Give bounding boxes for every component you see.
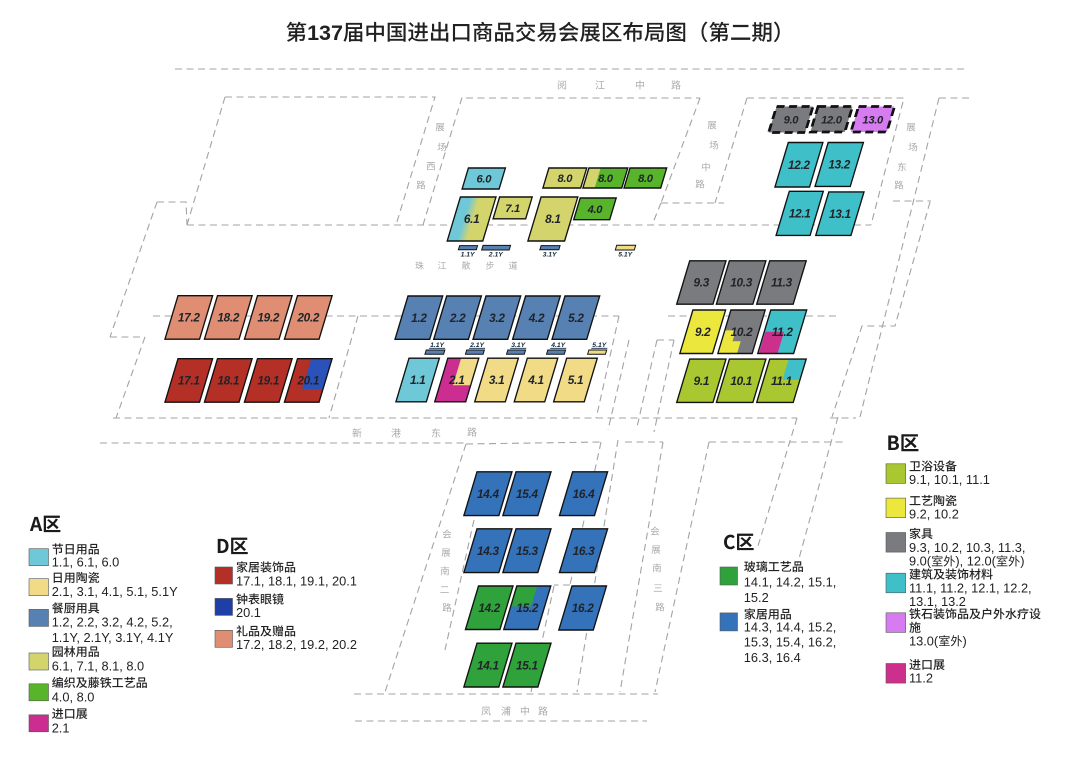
- svg-text:17.1, 18.1, 19.1, 20.1: 17.1, 18.1, 19.1, 20.1: [236, 574, 357, 589]
- svg-text:19.2: 19.2: [257, 311, 279, 325]
- svg-text:15.3: 15.3: [516, 544, 538, 558]
- svg-text:13.2: 13.2: [828, 158, 850, 172]
- svg-text:4.0: 4.0: [587, 204, 604, 216]
- svg-text:1.1: 1.1: [410, 373, 426, 387]
- svg-text:12.0: 12.0: [821, 114, 843, 126]
- svg-text:): ): [963, 633, 967, 648]
- svg-text:14.4: 14.4: [477, 487, 499, 501]
- svg-text:9.3, 10.2, 10.3, 11.3,: 9.3, 10.2, 10.3, 11.3,: [909, 540, 1025, 555]
- svg-text:16.3, 16.4: 16.3, 16.4: [744, 650, 801, 665]
- svg-text:4.1Y: 4.1Y: [550, 342, 566, 349]
- svg-text:11.2: 11.2: [772, 325, 794, 339]
- svg-text:18.1: 18.1: [217, 374, 239, 388]
- svg-text:11.2: 11.2: [909, 671, 933, 686]
- svg-text:8.1: 8.1: [545, 212, 561, 226]
- svg-text:13.0: 13.0: [862, 114, 884, 126]
- svg-text:11.1: 11.1: [771, 374, 792, 388]
- svg-text:15.2: 15.2: [516, 601, 538, 615]
- svg-text:9.1, 10.1, 11.1: 9.1, 10.1, 11.1: [909, 472, 990, 487]
- svg-text:9.0: 9.0: [784, 115, 800, 127]
- svg-text:6.1: 6.1: [464, 212, 480, 226]
- svg-text:5.2: 5.2: [568, 311, 584, 325]
- svg-text:9.1: 9.1: [694, 374, 710, 388]
- svg-text:8.0: 8.0: [598, 173, 614, 185]
- svg-text:20.1: 20.1: [296, 374, 319, 388]
- svg-text:1.2, 2.2, 3.2, 4.2, 5.2,: 1.2, 2.2, 3.2, 4.2, 5.2,: [52, 615, 173, 630]
- svg-text:16.4: 16.4: [573, 487, 595, 501]
- svg-text:5.1Y: 5.1Y: [618, 252, 633, 259]
- svg-text:), 12.0(: ), 12.0(: [955, 554, 996, 569]
- svg-text:1.1Y, 2.1Y, 3.1Y, 4.1Y: 1.1Y, 2.1Y, 3.1Y, 4.1Y: [52, 630, 174, 645]
- svg-text:11.1, 11.2, 12.1, 12.2,: 11.1, 11.2, 12.1, 12.2,: [909, 580, 1032, 595]
- svg-text:6.1, 7.1, 8.1, 8.0: 6.1, 7.1, 8.1, 8.0: [52, 658, 145, 673]
- svg-text:137: 137: [307, 21, 343, 45]
- svg-text:2.1Y: 2.1Y: [488, 252, 504, 259]
- svg-text:1.2: 1.2: [411, 311, 427, 325]
- svg-text:17.2, 18.2, 19.2, 20.2: 17.2, 18.2, 19.2, 20.2: [236, 637, 357, 652]
- svg-text:5.1: 5.1: [568, 373, 584, 387]
- svg-text:14.1: 14.1: [477, 658, 499, 672]
- svg-text:15.2: 15.2: [744, 590, 769, 605]
- svg-text:18.2: 18.2: [217, 311, 239, 325]
- svg-text:3.1: 3.1: [489, 373, 505, 387]
- svg-text:12.2: 12.2: [788, 158, 810, 172]
- svg-text:10.1: 10.1: [730, 374, 752, 388]
- svg-text:16.2: 16.2: [572, 601, 594, 615]
- svg-text:9.2, 10.2: 9.2, 10.2: [909, 507, 959, 522]
- svg-text:17.2: 17.2: [178, 311, 200, 325]
- svg-text:14.1, 14.2, 15.1,: 14.1, 14.2, 15.1,: [744, 575, 837, 590]
- svg-text:5.1Y: 5.1Y: [592, 342, 607, 349]
- svg-text:4.1: 4.1: [527, 373, 544, 387]
- svg-text:1.1Y: 1.1Y: [461, 251, 476, 258]
- svg-text:14.3, 14.4, 15.2,: 14.3, 14.4, 15.2,: [744, 620, 837, 635]
- svg-text:14.3: 14.3: [477, 544, 499, 558]
- svg-text:9.2: 9.2: [695, 325, 711, 339]
- svg-text:13.0(: 13.0(: [909, 633, 939, 648]
- svg-text:): ): [1020, 554, 1024, 569]
- svg-text:15.3, 15.4, 16.2,: 15.3, 15.4, 16.2,: [744, 635, 837, 650]
- svg-text:9.3: 9.3: [694, 276, 710, 290]
- svg-text:1.1Y: 1.1Y: [430, 342, 445, 349]
- svg-text:4.2: 4.2: [528, 311, 545, 325]
- svg-text:1.1, 6.1, 6.0: 1.1, 6.1, 6.0: [52, 555, 120, 570]
- svg-text:2.1: 2.1: [52, 721, 70, 736]
- svg-text:20.1: 20.1: [236, 605, 261, 620]
- svg-text:3.2: 3.2: [489, 311, 505, 325]
- svg-text:2.1: 2.1: [448, 373, 465, 387]
- svg-text:6.0: 6.0: [476, 174, 492, 186]
- svg-text:15.4: 15.4: [516, 487, 538, 501]
- svg-text:4.0, 8.0: 4.0, 8.0: [52, 689, 95, 704]
- svg-text:10.3: 10.3: [730, 276, 752, 290]
- svg-text:20.2: 20.2: [296, 311, 319, 325]
- svg-text:7.1: 7.1: [505, 203, 520, 215]
- svg-text:9.0(: 9.0(: [909, 554, 932, 569]
- svg-text:13.1, 13.2: 13.1, 13.2: [909, 594, 966, 609]
- svg-text:12.1: 12.1: [789, 207, 811, 221]
- svg-text:13.1: 13.1: [829, 207, 851, 221]
- svg-text:8.0: 8.0: [638, 173, 654, 185]
- svg-text:3.1Y: 3.1Y: [511, 342, 526, 349]
- svg-text:2.1Y: 2.1Y: [469, 342, 485, 349]
- svg-text:17.1: 17.1: [178, 374, 200, 388]
- svg-text:15.1: 15.1: [516, 658, 538, 672]
- svg-text:10.2: 10.2: [731, 325, 753, 339]
- svg-text:16.3: 16.3: [573, 544, 595, 558]
- svg-text:2.2: 2.2: [449, 311, 466, 325]
- svg-text:2.1, 3.1, 4.1, 5.1, 5.1Y: 2.1, 3.1, 4.1, 5.1, 5.1Y: [52, 584, 178, 599]
- svg-text:11.3: 11.3: [771, 276, 793, 290]
- svg-text:3.1Y: 3.1Y: [543, 251, 558, 258]
- svg-text:14.2: 14.2: [478, 601, 500, 615]
- svg-text:8.0: 8.0: [557, 173, 573, 185]
- svg-text:19.1: 19.1: [257, 374, 279, 388]
